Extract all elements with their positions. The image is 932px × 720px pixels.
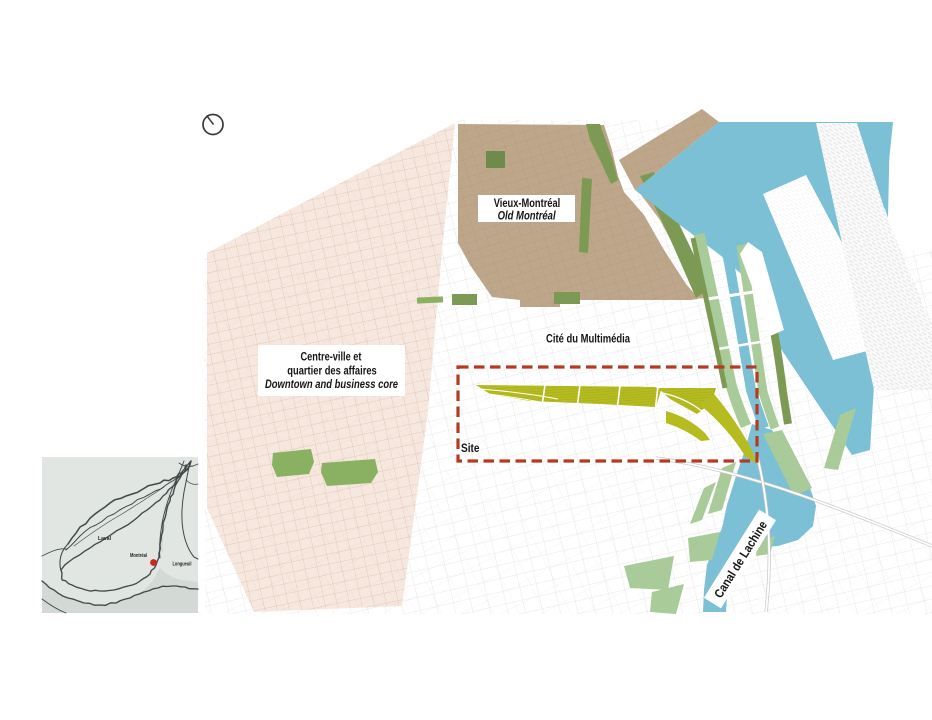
svg-text:Old Montréal: Old Montréal [498,209,557,223]
svg-text:Downtown and business core: Downtown and business core [265,379,398,391]
svg-text:Site: Site [461,441,480,455]
svg-text:quartier des affaires: quartier des affaires [287,365,377,377]
svg-text:Laval: Laval [98,536,111,542]
svg-text:Montréal: Montréal [130,553,147,559]
svg-text:Centre-ville et: Centre-ville et [301,352,362,364]
svg-text:Longueuil: Longueuil [173,562,192,568]
svg-text:Cité du Multimédia: Cité du Multimédia [546,332,630,346]
